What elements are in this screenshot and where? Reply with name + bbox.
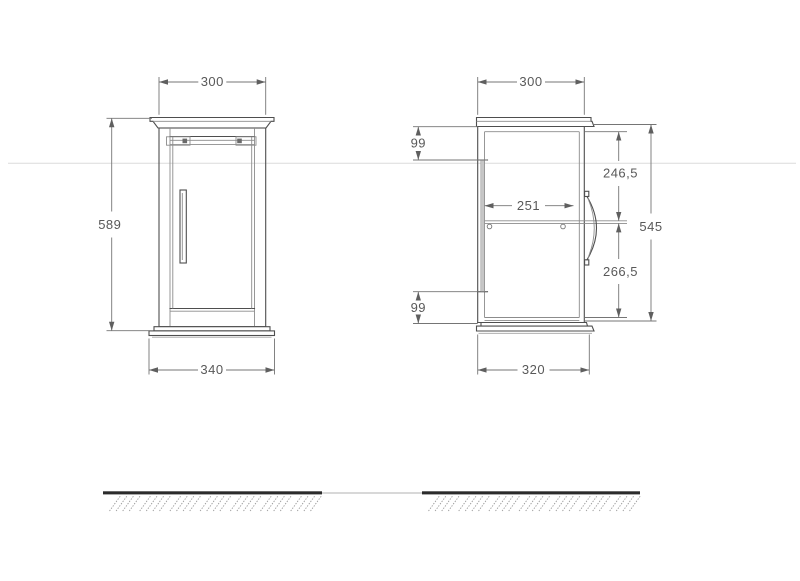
dim-label-carcass-height: 545 <box>639 219 662 234</box>
front-view <box>149 118 275 338</box>
plinth-front <box>149 327 275 338</box>
shelf-pin-back <box>487 224 492 229</box>
dim-label-side-base-depth: 320 <box>522 362 545 377</box>
dimension-side-base-depth: 320 <box>478 335 590 377</box>
dim-label-side-top-depth: 300 <box>519 74 542 89</box>
technical-drawing-canvas: 300 589 340 300 99 246,5 251 <box>0 0 800 581</box>
cabinet-carcass <box>159 128 266 327</box>
side-view <box>477 118 628 334</box>
dim-label-upper-inner: 246,5 <box>603 166 638 181</box>
crown-molding-side <box>477 118 595 127</box>
dim-label-front-base-width: 340 <box>200 362 223 377</box>
plinth-side <box>477 323 595 334</box>
dim-label-front-height: 589 <box>98 217 121 232</box>
door-handle <box>180 190 186 263</box>
shelf-pin-front <box>561 224 566 229</box>
dimension-front-base-width: 340 <box>149 339 275 377</box>
shelf <box>485 221 628 229</box>
dim-label-shelf-depth: 251 <box>517 198 540 213</box>
crown-molding <box>150 118 274 129</box>
dimension-back-offset-top: 99 <box>411 127 488 160</box>
dimension-back-offset-bottom: 99 <box>411 292 488 324</box>
dimension-front-height: 589 <box>98 118 152 330</box>
ground <box>103 491 641 511</box>
door-handle-side <box>585 191 597 265</box>
dimension-lower-inner: 266,5 <box>584 223 638 317</box>
dim-label-back-offset-top: 99 <box>411 135 426 150</box>
dim-label-back-offset-bottom: 99 <box>411 300 426 315</box>
dim-label-front-top-width: 300 <box>201 74 224 89</box>
dimension-front-top-width: 300 <box>159 74 266 115</box>
dim-label-lower-inner: 266,5 <box>603 264 638 279</box>
ground-hatch <box>110 496 641 511</box>
back-panel <box>481 160 485 291</box>
ground-line-left <box>103 491 322 494</box>
mounting-rail <box>167 137 257 145</box>
dimension-side-top-depth: 300 <box>478 74 585 115</box>
dimension-shelf-depth: 251 <box>485 198 574 213</box>
ground-line-right <box>422 491 640 494</box>
